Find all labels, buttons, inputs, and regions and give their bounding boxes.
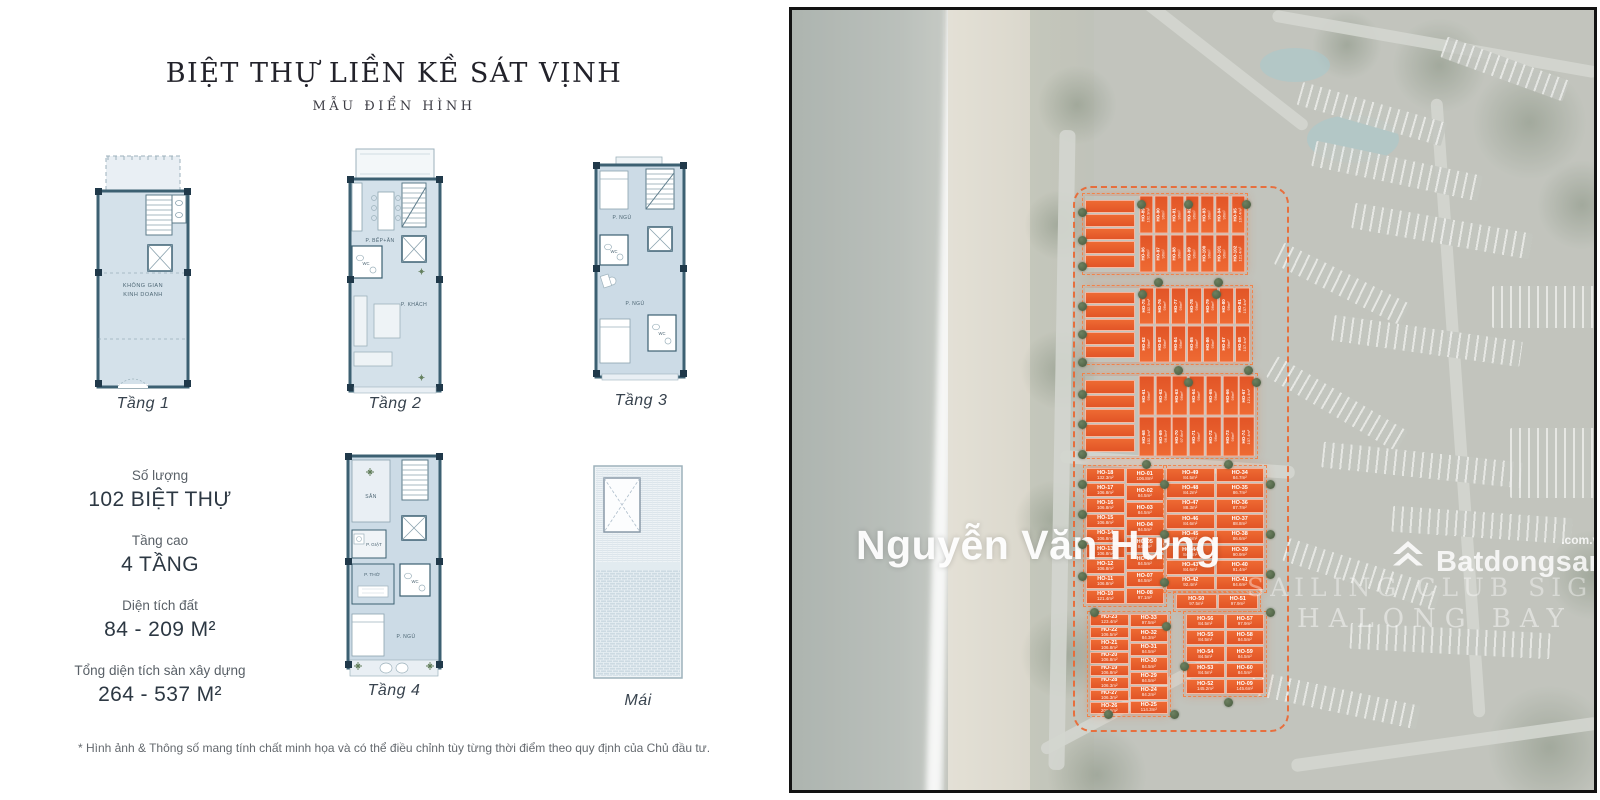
lot: HO-10196m² <box>1215 235 1229 273</box>
lot: HO-01106.8m² <box>1126 468 1165 484</box>
lot-area: 102.1m² <box>1147 429 1151 444</box>
lot-area: 84.5m² <box>1138 579 1152 584</box>
tree-icon <box>1224 698 1233 707</box>
lot-area: 92.4m² <box>1183 583 1197 588</box>
tree-icon <box>1078 358 1087 367</box>
lot-strip <box>1085 305 1135 317</box>
lot: HO-3687.7m² <box>1216 499 1265 513</box>
lot-area: 96m² <box>1179 302 1183 311</box>
tree-icon <box>1242 200 1251 209</box>
project-name-line2: HALONG BAY <box>1297 604 1547 634</box>
tree-icon <box>1170 710 1179 719</box>
floor-plan-mai <box>590 462 686 682</box>
lot-area: 145.6m² <box>1236 687 1253 692</box>
lot: HO-5097.5m² <box>1176 594 1217 609</box>
tree-icon <box>1224 460 1233 469</box>
lot-area: 96m² <box>1195 302 1199 311</box>
lot-strip <box>1085 292 1135 304</box>
lot: HO-27106.3m² <box>1090 690 1129 702</box>
lot: HO-3084.5m² <box>1130 657 1169 670</box>
brand-tld: .com.vn <box>1561 534 1597 546</box>
lot: HO-9496m² <box>1215 196 1229 234</box>
lot-area: 106.8m² <box>1097 491 1114 496</box>
tree-icon <box>1180 662 1189 671</box>
lot-area: 97.1m² <box>1138 596 1152 601</box>
lot: HO-0284.5m² <box>1126 485 1165 501</box>
plan-caption-tang-4: Tầng 4 <box>334 682 454 700</box>
lot-area: 96m² <box>1231 432 1235 441</box>
lot-area: 96m² <box>1147 339 1151 348</box>
lot-area: 121.4m² <box>1238 246 1242 261</box>
plan-caption-tang-2: Tầng 2 <box>335 395 455 413</box>
disclaimer-footnote: * Hình ảnh & Thông số mang tính chất min… <box>0 741 788 755</box>
lot: HO-9796m² <box>1154 235 1168 273</box>
project-stats: Số lượng 102 BIỆT THỰ Tầng cao 4 TẦNG Di… <box>42 468 278 707</box>
lot: HO-8396m² <box>1155 326 1170 363</box>
lot-area: 86.7m² <box>1233 491 1247 496</box>
lot-area: 84.5m² <box>1138 511 1152 516</box>
tree-icon <box>1214 278 1223 287</box>
lot-column: HO-5797.9m²HO-5884.5m²HO-5984.5m²HO-6084… <box>1226 614 1265 694</box>
lot: HO-7196m² <box>1189 417 1205 457</box>
lot: HO-9696m² <box>1139 235 1153 273</box>
lot-area: 145.2m² <box>1197 687 1214 692</box>
tree-icon <box>1078 330 1087 339</box>
room-label: WC <box>363 261 370 266</box>
terrace-area <box>106 156 180 190</box>
lot-strip-block <box>1085 292 1135 358</box>
room-label: P. NGỦ <box>613 214 632 221</box>
lot-area: 90.9m² <box>1233 553 1247 558</box>
lot-area: 96.5m² <box>1164 430 1168 442</box>
room-label: WC <box>412 579 419 584</box>
batdongsan-watermark: .com.vn Batdongsan <box>1388 534 1597 577</box>
block-g: HO-5684.5m²HO-5584.5m²HO-5484.5m²HO-5384… <box>1186 614 1264 694</box>
lot: HO-7796m² <box>1171 288 1186 325</box>
lot-area: 84.2m² <box>1183 491 1197 496</box>
lot-area: 106.3m² <box>1101 696 1118 701</box>
lot-strip <box>1085 255 1135 268</box>
lot-area: 96m² <box>1211 302 1215 311</box>
lot: HO-4788.3m² <box>1166 499 1215 513</box>
tree-icon <box>1078 390 1087 399</box>
lot: HO-6996.5m² <box>1156 417 1172 457</box>
lot-row: HO-9696m²HO-9796m²HO-9896m²HO-9996m²HO-1… <box>1139 235 1245 273</box>
lot: HO-5584.5m² <box>1186 630 1225 645</box>
tree-icon <box>1078 262 1087 271</box>
lot-area: 96m² <box>1147 391 1151 400</box>
lot-area: 84.5m² <box>1238 638 1252 643</box>
brochure-page: BIỆT THỰ LIỀN KỀ SÁT VỊNH MẪU ĐIỂN HÌNH … <box>0 0 1600 800</box>
lot: HO-5384.5m² <box>1186 663 1225 678</box>
lot-row: HO-8296m²HO-8396m²HO-8496m²HO-8596m²HO-8… <box>1139 326 1250 363</box>
lot-row: HO-6196m²HO-6296m²HO-6396m²HO-6496m²HO-6… <box>1139 376 1255 416</box>
lot: HO-8296m² <box>1139 326 1154 363</box>
tree-icon <box>1078 510 1087 519</box>
lot-area: 96m² <box>1192 249 1196 258</box>
tree-icon <box>1078 302 1087 311</box>
dining-table <box>378 192 394 230</box>
lot-area: 106.3m² <box>1101 684 1118 689</box>
lot-area: 88.3m² <box>1183 506 1197 511</box>
lot: HO-09145.6m² <box>1226 679 1265 694</box>
tree-icon <box>1142 460 1151 469</box>
terrace-area <box>356 149 434 179</box>
block-f: HO-23123.4m²HO-22106.5m²HO-21106.8m²HO-2… <box>1090 614 1168 714</box>
lot-area: 91.4m² <box>1233 568 1247 573</box>
lot-area: 84.5m² <box>1138 494 1152 499</box>
lot: HO-4984.5m² <box>1166 468 1215 482</box>
lot-area: 132.3m² <box>1097 476 1114 481</box>
lot-area: 96m² <box>1214 391 1218 400</box>
tree-icon <box>1137 200 1146 209</box>
lot-area: 97.6m² <box>1181 430 1185 442</box>
lot: HO-2484.2m² <box>1130 686 1169 699</box>
lot-strip <box>1085 346 1135 358</box>
block-e2: HO-5097.5m²HO-5197.9m² <box>1176 594 1258 609</box>
plan-caption-tang-3: Tầng 3 <box>581 392 701 410</box>
lot-area: 107.4m² <box>1243 299 1247 314</box>
lot: HO-6084.5m² <box>1226 663 1265 678</box>
lot-area: 106.8m² <box>1136 477 1153 482</box>
lot-area: 84.7m² <box>1233 476 1247 481</box>
lot-strip-block <box>1085 380 1135 452</box>
tree-icon <box>1160 530 1169 539</box>
lot-area: 121.4m² <box>1097 597 1114 602</box>
tree-icon <box>1078 236 1087 245</box>
room-label: KINH DOANH <box>123 292 163 298</box>
stat-floor-area: Tổng diện tích sàn xây dựng 264 - 537 M² <box>42 663 278 707</box>
batdongsan-logo-icon <box>1388 536 1428 576</box>
lot: HO-6296m² <box>1156 376 1172 416</box>
lot: HO-7696m² <box>1155 288 1170 325</box>
lot-area: 96m² <box>1214 432 1218 441</box>
lot: HO-22106.5m² <box>1090 627 1129 639</box>
lot: HO-10121.4m² <box>1086 590 1125 604</box>
lot: HO-102121.4m² <box>1231 235 1245 273</box>
block-b: HO-75102.9m²HO-7696m²HO-7796m²HO-7896m²H… <box>1085 288 1250 362</box>
tree-icon <box>1078 420 1087 429</box>
lot-area: 121.4m² <box>1247 388 1251 403</box>
page-subtitle: MẪU ĐIỂN HÌNH <box>0 99 788 114</box>
tree-icon <box>1078 572 1087 581</box>
lot: HO-11106.8m² <box>1086 575 1125 589</box>
lot-column: HO-5097.5m² <box>1176 594 1217 609</box>
lot-area: 96m² <box>1197 432 1201 441</box>
worship-room <box>352 564 394 604</box>
lot: HO-88107.4m² <box>1235 326 1250 363</box>
tree-icon <box>1154 278 1163 287</box>
lot-column: HO-23123.4m²HO-22106.5m²HO-21106.8m²HO-2… <box>1090 614 1129 714</box>
project-name-line1: SAILING CLUB SIGNATURE <box>1247 573 1592 602</box>
lot: HO-7296m² <box>1206 417 1222 457</box>
lot-area: 96m² <box>1181 391 1185 400</box>
lot: HO-8096m² <box>1219 288 1234 325</box>
lot: HO-17106.8m² <box>1086 483 1125 497</box>
lot-area: 106.8m² <box>1101 646 1118 651</box>
lot-area: 106.8m² <box>1097 582 1114 587</box>
lot-area: 114.3m² <box>1141 708 1157 713</box>
lot-area: 106.5m² <box>1101 633 1118 638</box>
stat-floors: Tầng cao 4 TẦNG <box>42 533 278 577</box>
tree-icon <box>1104 710 1113 719</box>
lot: HO-9896m² <box>1170 235 1184 273</box>
page-title: BIỆT THỰ LIỀN KỀ SÁT VỊNH <box>0 58 788 89</box>
lot-strip-block <box>1085 200 1135 268</box>
tree-icon <box>1078 450 1087 459</box>
lot-area: 84.3m² <box>1142 636 1156 641</box>
lot: HO-6596m² <box>1206 376 1222 416</box>
lot-area: 107.4m² <box>1238 207 1242 222</box>
lot-strip <box>1085 395 1135 409</box>
lot-column: HO-5684.5m²HO-5584.5m²HO-5484.5m²HO-5384… <box>1186 614 1225 694</box>
tree-icon <box>1184 200 1193 209</box>
stat-quantity: Số lượng 102 BIỆT THỰ <box>42 468 278 512</box>
lot: HO-10096m² <box>1200 235 1214 273</box>
room-label: P. BẾP+ĂN <box>366 237 395 244</box>
room-label: WC <box>659 331 666 336</box>
lot-area: 88.8m² <box>1233 522 1247 527</box>
lot: HO-6196m² <box>1139 376 1155 416</box>
room-label: P. NGỦ <box>626 300 645 307</box>
tree-icon <box>1266 530 1275 539</box>
room-label: SÂN <box>365 493 376 500</box>
lot-area: 102.9m² <box>1146 207 1150 222</box>
tree-icon <box>1162 622 1171 631</box>
lot-strip <box>1085 319 1135 331</box>
room-label: P. THỜ <box>364 571 380 578</box>
lot-area: 84.5m² <box>1142 665 1156 670</box>
tree-icon <box>1252 378 1261 387</box>
lot: HO-20106.8m² <box>1090 652 1129 664</box>
lot-area: 84.5m² <box>1198 622 1212 627</box>
lot: HO-81107.4m² <box>1235 288 1250 325</box>
watermark-text: Nguyễn Văn Hưng <box>856 522 1221 569</box>
tree-icon <box>1078 540 1087 549</box>
lot-grid: HO-23123.4m²HO-22106.5m²HO-21106.8m²HO-2… <box>1090 614 1168 714</box>
lot-area: 84.5m² <box>1238 671 1252 676</box>
lot: HO-8796m² <box>1219 326 1234 363</box>
tree-icon <box>1160 578 1169 587</box>
lot-grid: HO-6196m²HO-6296m²HO-6396m²HO-6496m²HO-6… <box>1139 376 1255 456</box>
lot: HO-3284.3m² <box>1130 628 1169 641</box>
lot-area: 86.6m² <box>1233 537 1247 542</box>
lot: HO-8496m² <box>1171 326 1186 363</box>
lot: HO-5484.5m² <box>1186 646 1225 661</box>
lot: HO-9996m² <box>1185 235 1199 273</box>
lot: HO-7396m² <box>1223 417 1239 457</box>
block-c: HO-6196m²HO-6296m²HO-6396m²HO-6496m²HO-6… <box>1085 376 1255 456</box>
room-label: P. NGỦ <box>397 633 416 640</box>
lot-area: 96m² <box>1231 391 1235 400</box>
lot: HO-5984.5m² <box>1226 646 1265 661</box>
lot: HO-5884.5m² <box>1226 630 1265 645</box>
lot: HO-6696m² <box>1223 376 1239 416</box>
lot-area: 96m² <box>1163 339 1167 348</box>
lot-area: 96m² <box>1162 249 1166 258</box>
floor-plan-tang-1: KHÔNG GIAN KINH DOANH <box>88 153 198 395</box>
lot-grid: HO-89102.9m²HO-9096m²HO-9196m²HO-9296m²H… <box>1139 196 1245 272</box>
lot-area: 84.5m² <box>1198 655 1212 660</box>
tree-icon <box>1090 608 1099 617</box>
lot-area: 84.5m² <box>1183 476 1197 481</box>
lot-area: 84.5m² <box>1198 638 1212 643</box>
lot: HO-0784.5m² <box>1126 571 1165 587</box>
room-label: WC <box>611 249 618 254</box>
lot-strip <box>1085 241 1135 254</box>
lot: HO-3788.8m² <box>1216 514 1265 528</box>
lot-area: 97.9m² <box>1238 622 1252 627</box>
floor-plan-tang-4: SÂN P. GIẶT P. THỜ WC P. NGỦ <box>338 446 450 684</box>
lot-grid: HO-5097.5m²HO-5197.9m² <box>1176 594 1258 609</box>
lot-column: HO-3484.7m²HO-3586.7m²HO-3687.7m²HO-3788… <box>1216 468 1265 590</box>
lot: HO-3990.9m² <box>1216 545 1265 559</box>
lot-area: 84.5m² <box>1238 655 1252 660</box>
lot-strip <box>1085 380 1135 394</box>
lot-area: 84.5m² <box>1198 671 1212 676</box>
lot: HO-74107.4m² <box>1239 417 1255 457</box>
lot: HO-5797.9m² <box>1226 614 1265 629</box>
block-a: HO-89102.9m²HO-9096m²HO-9196m²HO-9296m²H… <box>1085 196 1245 272</box>
lot-area: 96m² <box>1211 339 1215 348</box>
lot: HO-21106.8m² <box>1090 639 1129 651</box>
lot: HO-2984.5m² <box>1130 672 1169 685</box>
lot-area: 97.5m² <box>1189 602 1203 607</box>
lot: HO-8696m² <box>1203 326 1218 363</box>
lot-area: 96m² <box>1208 210 1212 219</box>
lot: HO-9096m² <box>1154 196 1168 234</box>
floor-plan-tang-2: P. BẾP+ĂN WC P. KHÁCH <box>340 146 450 398</box>
lot: HO-52145.2m² <box>1186 679 1225 694</box>
site-map: HO-89102.9m²HO-9096m²HO-9196m²HO-9296m²H… <box>789 7 1597 793</box>
lot: HO-9196m² <box>1170 196 1184 234</box>
lot: HO-0384.5m² <box>1126 502 1165 518</box>
lot-area: 84.6m² <box>1233 583 1247 588</box>
lot-area: 102.9m² <box>1147 299 1151 314</box>
lot-area: 107.4m² <box>1243 336 1247 351</box>
lot-area: 96m² <box>1197 391 1201 400</box>
bed <box>600 171 628 209</box>
lot-area: 97.5m² <box>1142 621 1156 626</box>
lot-area: 106.8m² <box>1097 506 1114 511</box>
lot-area: 107.4m² <box>1247 429 1251 444</box>
tree-icon <box>1266 608 1275 617</box>
tiled-roof <box>596 570 680 676</box>
lot-area: 96m² <box>1179 339 1183 348</box>
plan-caption-mai: Mái <box>578 692 698 710</box>
lot-area: 84.2m² <box>1142 693 1156 698</box>
room-label: P. GIẶT <box>366 541 382 547</box>
plan-caption-tang-1: Tầng 1 <box>83 395 203 413</box>
lot: HO-9396m² <box>1200 196 1214 234</box>
lot-area: 106.8m² <box>1101 658 1118 663</box>
lot: HO-3484.7m² <box>1216 468 1265 482</box>
tree-icon <box>1184 378 1193 387</box>
lot-area: 96m² <box>1162 210 1166 219</box>
lot: HO-4884.2m² <box>1166 483 1215 497</box>
lot-strip <box>1085 200 1135 213</box>
lot-area: 96m² <box>1192 210 1196 219</box>
lot-area: 106.8m² <box>1101 671 1118 676</box>
lot: HO-7097.6m² <box>1172 417 1188 457</box>
bed <box>600 319 630 363</box>
tree-icon <box>1212 290 1221 299</box>
lot-area: 96m² <box>1223 210 1227 219</box>
lot-area: 84.5m² <box>1142 679 1156 684</box>
lot-area: 96m² <box>1227 339 1231 348</box>
lot: HO-4292.4m² <box>1166 576 1215 590</box>
lot-area: 96m² <box>1177 249 1181 258</box>
tree-icon <box>1266 570 1275 579</box>
lot-area: 96m² <box>1177 210 1181 219</box>
lot: HO-8596m² <box>1187 326 1202 363</box>
lot-area: 84.5m² <box>1142 650 1156 655</box>
lot: HO-18132.3m² <box>1086 468 1125 482</box>
sofa <box>354 296 367 346</box>
lot: HO-0897.1m² <box>1126 588 1165 604</box>
tree-icon <box>1266 480 1275 489</box>
lot-row: HO-68102.1m²HO-6996.5m²HO-7097.6m²HO-719… <box>1139 417 1255 457</box>
lot: HO-5684.5m² <box>1186 614 1225 629</box>
lot: HO-16106.8m² <box>1086 498 1125 512</box>
lot-area: 97.9m² <box>1231 602 1245 607</box>
lot: HO-68102.1m² <box>1139 417 1155 457</box>
tree-icon <box>1078 208 1087 217</box>
lot-grid: HO-5684.5m²HO-5584.5m²HO-5484.5m²HO-5384… <box>1186 614 1264 694</box>
lot: HO-3184.5m² <box>1130 643 1169 656</box>
floor-plan-tang-3: P. NGỦ WC P. NGỦ WC <box>588 155 693 387</box>
lot-area: 96m² <box>1195 339 1199 348</box>
lot-area: 96m² <box>1223 249 1227 258</box>
lot-strip <box>1085 409 1135 423</box>
lot-strip <box>1085 332 1135 344</box>
lot-area: 96m² <box>1163 302 1167 311</box>
lot: HO-25114.3m² <box>1130 701 1169 714</box>
lot: HO-3586.7m² <box>1216 483 1265 497</box>
lot-grid: HO-75102.9m²HO-7696m²HO-7796m²HO-7896m²H… <box>1139 288 1250 362</box>
terrace-area <box>352 460 390 522</box>
room-label: KHÔNG GIAN <box>123 282 163 289</box>
lot-area: 123.4m² <box>1101 620 1118 625</box>
lot-area: 87.7m² <box>1233 506 1247 511</box>
kitchen-counter <box>352 183 362 231</box>
room-label: P. KHÁCH <box>401 301 427 308</box>
lot: HO-3886.6m² <box>1216 530 1265 544</box>
stat-land-area: Diện tích đất 84 - 209 M² <box>42 598 278 642</box>
lot-area: 96m² <box>1208 249 1212 258</box>
lot-area: 96m² <box>1227 302 1231 311</box>
tree-icon <box>1244 366 1253 375</box>
lot-strip <box>1085 438 1135 452</box>
balcony <box>350 660 438 676</box>
lot: HO-19106.8m² <box>1090 665 1129 677</box>
lot: HO-7896m² <box>1187 288 1202 325</box>
lot-area: 96m² <box>1146 249 1150 258</box>
lot-strip <box>1085 228 1135 241</box>
tree-icon <box>1174 366 1183 375</box>
lot: HO-28106.3m² <box>1090 677 1129 689</box>
lot-area: 96m² <box>1164 391 1168 400</box>
lot-strip <box>1085 214 1135 227</box>
lot-strip <box>1085 424 1135 438</box>
bed <box>352 614 384 656</box>
tree-icon <box>1138 290 1147 299</box>
lot-row: HO-75102.9m²HO-7696m²HO-7796m²HO-7896m²H… <box>1139 288 1250 325</box>
floor-plans-panel: BIỆT THỰ LIỀN KỀ SÁT VỊNH MẪU ĐIỂN HÌNH … <box>0 0 788 800</box>
tree-icon <box>1078 480 1087 489</box>
tree-icon <box>1160 480 1169 489</box>
